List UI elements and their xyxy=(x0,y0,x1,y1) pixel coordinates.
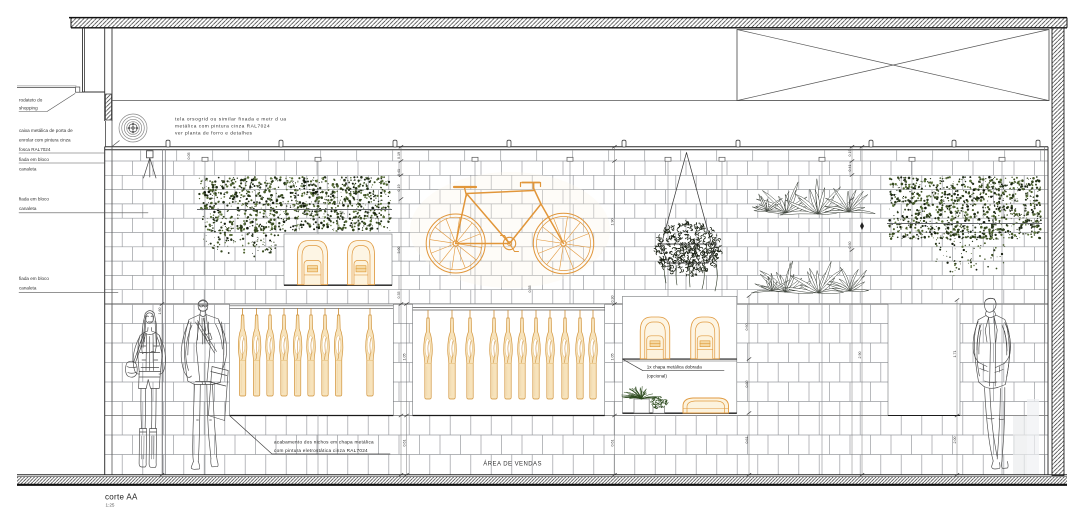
svg-text:1.05: 1.05 xyxy=(402,354,406,361)
svg-text:0.60: 0.60 xyxy=(848,202,852,209)
svg-text:1.60: 1.60 xyxy=(158,308,162,315)
svg-text:1.05: 1.05 xyxy=(610,354,614,361)
svg-text:tela orsogrid ou similar fixad: tela orsogrid ou similar fixada e metr d… xyxy=(175,117,287,123)
svg-text:0.61: 0.61 xyxy=(745,437,749,444)
svg-text:0.60: 0.60 xyxy=(745,381,749,388)
svg-text:1.71: 1.71 xyxy=(953,351,957,358)
svg-text:0.05: 0.05 xyxy=(187,153,191,160)
svg-text:1:25: 1:25 xyxy=(106,503,115,508)
svg-text:0.35: 0.35 xyxy=(528,286,532,293)
svg-text:0.41: 0.41 xyxy=(848,165,852,172)
svg-text:com pintura eletrostática cinz: com pintura eletrostática cinza RAL7024 xyxy=(274,448,368,453)
svg-text:ÁREA DE VENDAS: ÁREA DE VENDAS xyxy=(483,460,542,467)
svg-text:ver planta de forro e detalhes: ver planta de forro e detalhes xyxy=(175,131,253,137)
svg-text:caixa metálica de porta de: caixa metálica de porta de xyxy=(19,128,73,133)
svg-text:canaleta: canaleta xyxy=(19,286,37,291)
svg-text:0.30: 0.30 xyxy=(610,296,614,303)
svg-text:2.00: 2.00 xyxy=(953,437,957,444)
svg-text:0.19: 0.19 xyxy=(397,185,401,192)
svg-text:fosca RAL7024: fosca RAL7024 xyxy=(19,147,51,152)
svg-text:enrolar com pintura cinza: enrolar com pintura cinza xyxy=(19,138,71,143)
svg-text:metálica com pintura cinza RAL: metálica com pintura cinza RAL7024 xyxy=(175,124,270,130)
svg-text:corte AA: corte AA xyxy=(105,493,138,502)
svg-text:0.60: 0.60 xyxy=(848,242,852,249)
svg-text:1x chapa metálica dobrada: 1x chapa metálica dobrada xyxy=(647,365,703,370)
svg-text:acabamento dos nichos em chapa: acabamento dos nichos em chapa metálica xyxy=(274,440,374,445)
svg-text:3.00: 3.00 xyxy=(397,247,401,254)
svg-text:fiada em bloco: fiada em bloco xyxy=(19,157,49,162)
svg-text:2.90: 2.90 xyxy=(858,352,862,359)
svg-text:fiada em bloco: fiada em bloco xyxy=(19,276,49,281)
svg-text:shopping: shopping xyxy=(19,106,38,111)
svg-text:1.90: 1.90 xyxy=(610,219,614,226)
svg-text:fiada em bloco: fiada em bloco xyxy=(19,197,49,202)
svg-text:canaleta: canaleta xyxy=(19,206,37,211)
svg-text:0.35: 0.35 xyxy=(397,292,401,299)
svg-text:rodateto do: rodateto do xyxy=(19,98,43,103)
svg-text:0.19: 0.19 xyxy=(848,150,852,157)
svg-text:canaleta: canaleta xyxy=(19,167,37,172)
svg-text:0.41: 0.41 xyxy=(397,169,401,176)
svg-text:0.60: 0.60 xyxy=(745,324,749,331)
svg-text:(opcional): (opcional) xyxy=(647,374,668,379)
svg-text:0.19: 0.19 xyxy=(397,152,401,159)
svg-text:0.61: 0.61 xyxy=(402,440,406,447)
svg-text:0.61: 0.61 xyxy=(610,440,614,447)
